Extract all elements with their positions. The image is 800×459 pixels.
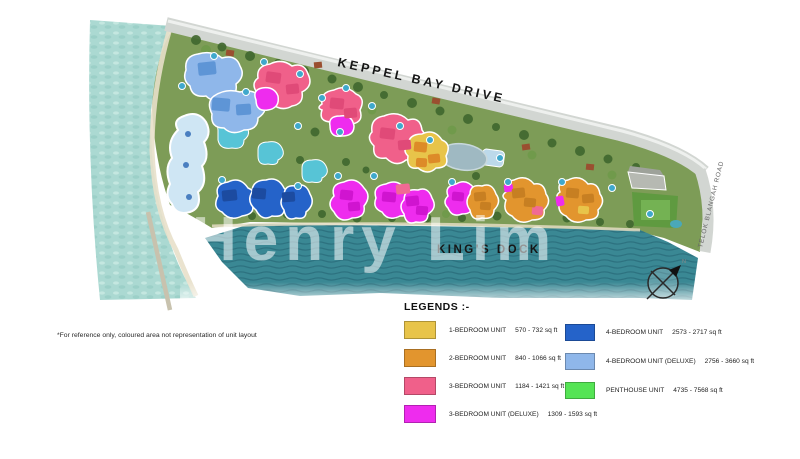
water-label-kings-dock: KING'S DOCK — [437, 244, 541, 256]
legend-item-range: 2756 - 3660 sq ft — [705, 358, 755, 365]
legend-item-label: PENTHOUSE UNIT — [606, 387, 664, 394]
legend-item-range: 4735 - 7568 sq ft — [673, 387, 723, 394]
legend-item-label: 2-BEDROOM UNIT — [449, 355, 506, 362]
legend-item-label: 1-BEDROOM UNIT — [449, 327, 506, 334]
lawn-court — [632, 192, 682, 228]
compass-north-label: N — [682, 259, 686, 265]
reference-note: *For reference only, coloured area not r… — [57, 332, 257, 339]
legend-swatch — [565, 382, 595, 399]
legend-item: 4-BEDROOM UNIT 2573 - 2717 sq ft — [565, 324, 754, 341]
legend-panel: LEGENDS :- 1-BEDROOM UNIT 570 - 732 sq f… — [404, 301, 597, 423]
legend-swatch — [565, 324, 595, 341]
legend-swatch — [404, 377, 436, 395]
legend-item-range: 2573 - 2717 sq ft — [672, 329, 722, 336]
legend-item: PENTHOUSE UNIT 4735 - 7568 sq ft — [565, 382, 754, 399]
site-plan-screenshot: KEPPEL BAY DRIVE KING'S DOCK TELOK BLANG… — [0, 0, 800, 459]
legend-swatch — [404, 321, 436, 339]
legend-item: 3-BEDROOM UNIT (DELUXE) 1309 - 1593 sq f… — [404, 405, 597, 423]
legend-item-label: 3-BEDROOM UNIT (DELUXE) — [449, 411, 539, 418]
legend-item-label: 4-BEDROOM UNIT — [606, 329, 663, 336]
building-cluster-mixed-south — [445, 182, 499, 219]
legend-swatch — [404, 349, 436, 367]
legend-swatch — [565, 353, 595, 370]
legend-item-range: 840 - 1066 sq ft — [515, 355, 561, 362]
legend-item-label: 4-BEDROOM UNIT (DELUXE) — [606, 358, 696, 365]
legend-item-range: 1309 - 1593 sq ft — [548, 411, 598, 418]
building-cluster-3br-deluxe-a — [330, 180, 368, 220]
legend-column-right: 4-BEDROOM UNIT 2573 - 2717 sq ft 4-BEDRO… — [565, 324, 754, 399]
legend-item-range: 570 - 732 sq ft — [515, 327, 557, 334]
legend-swatch — [404, 405, 436, 423]
legend-item-label: 3-BEDROOM UNIT — [449, 383, 506, 390]
legend-item: 4-BEDROOM UNIT (DELUXE) 2756 - 3660 sq f… — [565, 353, 754, 370]
legend-item-range: 1184 - 1421 sq ft — [515, 383, 564, 390]
legend-title: LEGENDS :- — [404, 301, 597, 313]
